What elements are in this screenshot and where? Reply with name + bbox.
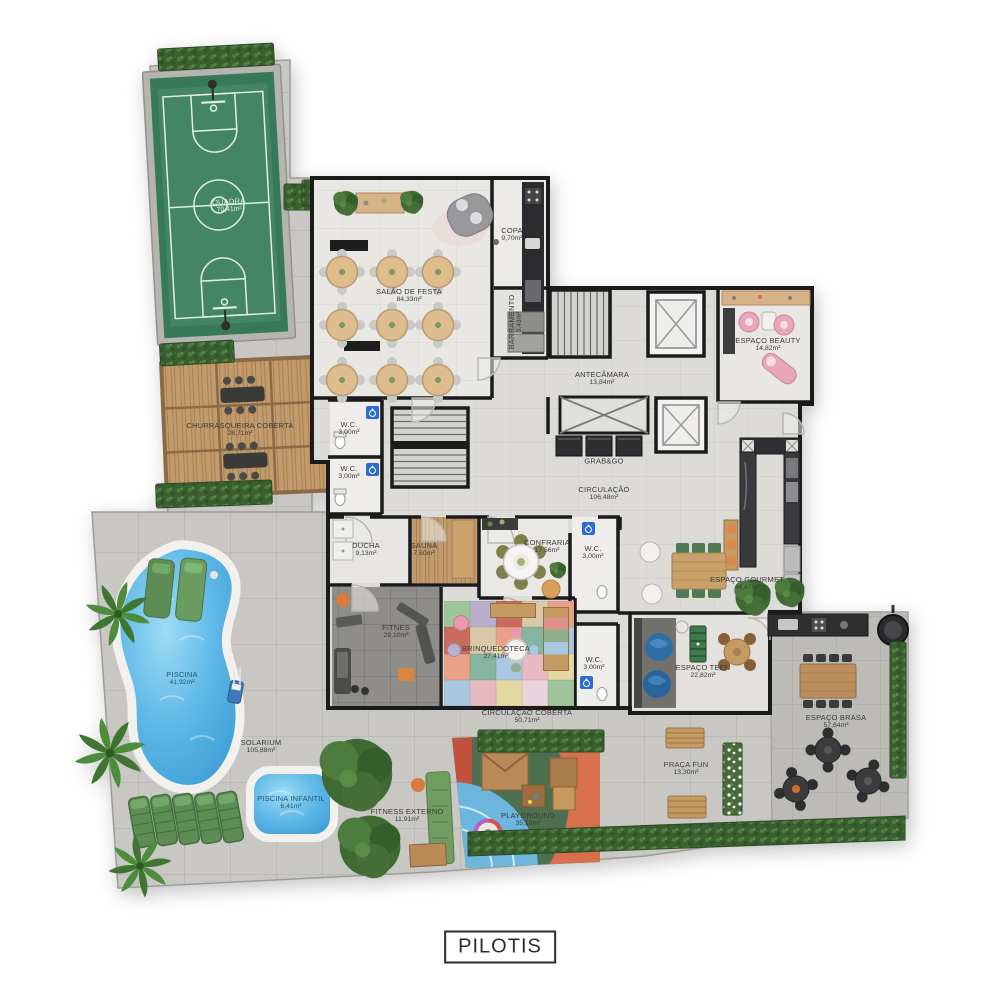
pool — [116, 545, 240, 790]
floor-plan-canvas: QUADRA70,41m² CHURRASQUEIRA COBERTA28,71… — [0, 0, 1000, 1000]
stair-lower — [392, 408, 468, 487]
service-shaft — [560, 397, 648, 433]
sun-loungers — [128, 791, 244, 849]
floor-plan-drawing — [0, 0, 1000, 1000]
sports-court — [142, 64, 295, 345]
plan-title-badge: PILOTIS — [444, 931, 556, 964]
stair-upper — [550, 290, 610, 357]
kids-pool — [250, 770, 334, 838]
brasa-terrace-slab — [770, 612, 908, 838]
grabgo-cabinets — [556, 436, 642, 456]
elevator-1 — [648, 292, 704, 356]
bbq-deck — [159, 354, 333, 499]
elevator-2 — [656, 398, 706, 452]
